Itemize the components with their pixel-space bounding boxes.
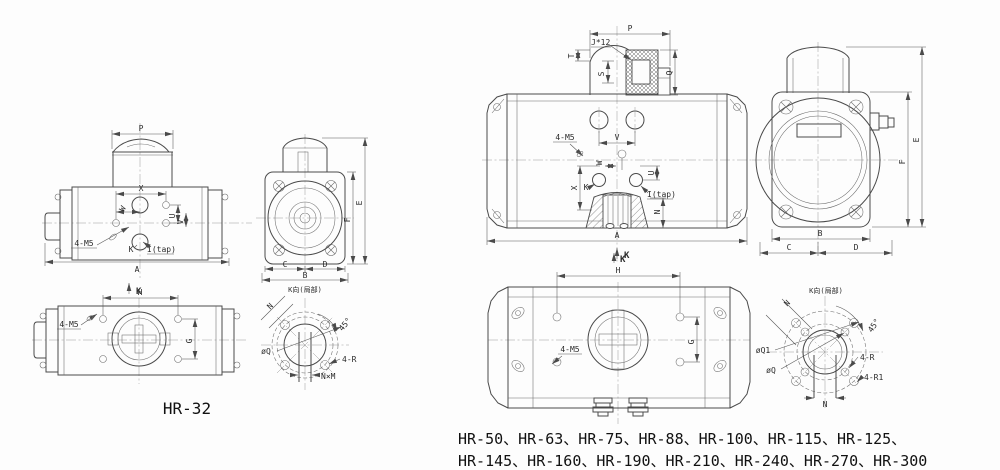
hr32-detail-dim-n: N <box>265 301 275 311</box>
hr50-side-dim-e: E <box>912 137 921 142</box>
hr50-front-view: P J*12 T S Q V 4-M5 W X <box>482 24 752 262</box>
hr50-front-dim-a: A <box>615 231 620 240</box>
hr50-detail-view-k: K向(局部) N 45° øQ1 øQ 4-R 4-R1 N <box>756 286 884 410</box>
hr32-front-dim-v: V <box>176 219 185 224</box>
hr50-detail-label-4r1: 4-R1 <box>864 373 883 382</box>
hr32-front-dim-p: P <box>139 124 144 133</box>
hr50-detail-dim-n-bottom: N <box>823 400 828 409</box>
hr50-side-dim-c: C <box>787 243 792 252</box>
hr32-detail-label-4r: 4-R <box>342 355 357 364</box>
hr50-front-label-itap: I(tap) <box>647 190 676 199</box>
hr50-front-label-k: K <box>584 183 589 192</box>
hr50-front-dim-t: T <box>567 53 576 58</box>
hr50-caption-line2: HR-145、HR-160、HR-190、HR-210、HR-240、HR-27… <box>458 452 927 470</box>
hr32-front-label-4m5: 4-M5 <box>74 239 93 248</box>
hr50-front-dim-q: Q <box>665 70 674 75</box>
hr50-front-dim-j: J*12 <box>591 38 610 47</box>
hr50-bottom-dim-g: G <box>687 339 696 344</box>
hr50-front-dim-w: W <box>595 160 604 165</box>
hr32-front-label-k: K <box>129 245 134 254</box>
hr32-side-dim-f: F <box>343 217 352 222</box>
hr50-bottom-view-k-label: K <box>620 255 626 265</box>
hr50-detail-dim-n-diag: N <box>782 298 792 308</box>
hr32-detail-dim-nxm: N×M <box>321 372 336 381</box>
hr32-bottom-dim-g: G <box>185 338 194 343</box>
hr32-front-dim-u: U <box>168 213 177 218</box>
hr50-detail-dim-phiq: øQ <box>766 366 776 375</box>
hr32-bottom-view: H G 4-M5 <box>32 288 248 384</box>
hr50-detail-dim-45: 45° <box>866 317 882 334</box>
hr32-side-dim-c: C <box>283 260 288 269</box>
drawing-sheet: P X W U V 4-M5 K <box>0 0 1000 470</box>
hr50-front-dim-n: N <box>653 209 662 214</box>
hr32-caption: HR-32 <box>163 399 211 418</box>
hr50-bottom-label-4m5: 4-M5 <box>560 345 579 354</box>
hr32-detail-dim-45: 45° <box>337 316 353 333</box>
hr50-detail-title: K向(局部) <box>809 286 843 295</box>
hr32-front-dim-a: A <box>135 265 140 274</box>
actuator-technical-drawing: P X W U V 4-M5 K <box>0 0 1000 470</box>
hr50-side-view: E F B C D <box>752 42 926 256</box>
hr50-detail-label-4r: 4-R <box>860 353 875 362</box>
hr50-side-dim-d: D <box>854 243 859 252</box>
hr50-caption-line1: HR-50、HR-63、HR-75、HR-88、HR-100、HR-115、HR… <box>458 430 906 448</box>
hr50-bottom-view: K H G <box>488 253 750 424</box>
hr32-front-view: P X W U V 4-M5 K <box>42 123 252 278</box>
hr50-front-dim-p: P <box>628 24 633 33</box>
hr50-front-label-4m5: 4-M5 <box>555 133 574 142</box>
hr32-detail-title: K向(局部) <box>288 285 322 294</box>
hr50-front-dim-s: S <box>597 71 606 76</box>
hr50-side-dim-b: B <box>818 229 823 238</box>
hr32-side-view: E F C D B <box>256 134 368 283</box>
hr32-side-dim-e: E <box>355 200 364 205</box>
hr32-detail-dim-phiq: øQ <box>261 347 271 356</box>
hr50-side-dim-f: F <box>898 159 907 164</box>
hr32-bottom-dim-h: H <box>138 288 143 297</box>
hr50-front-dim-v: V <box>615 133 620 142</box>
hr50-front-dim-x: X <box>570 185 579 190</box>
hr32-side-dim-d: D <box>323 260 328 269</box>
hr32-bottom-label-4m5: 4-M5 <box>59 320 78 329</box>
hr32-front-dim-x: X <box>139 184 144 193</box>
hr32-front-label-itap: I(tap) <box>147 245 176 254</box>
hr50-front-dim-u: U <box>647 170 656 175</box>
hr32-detail-view-k: K向(局部) N 45° øQ 4-R N×M <box>261 285 357 390</box>
hr32-side-dim-b: B <box>303 271 308 280</box>
hr50-detail-dim-phiq1: øQ1 <box>756 346 771 355</box>
hr50-bottom-dim-h: H <box>616 266 621 275</box>
